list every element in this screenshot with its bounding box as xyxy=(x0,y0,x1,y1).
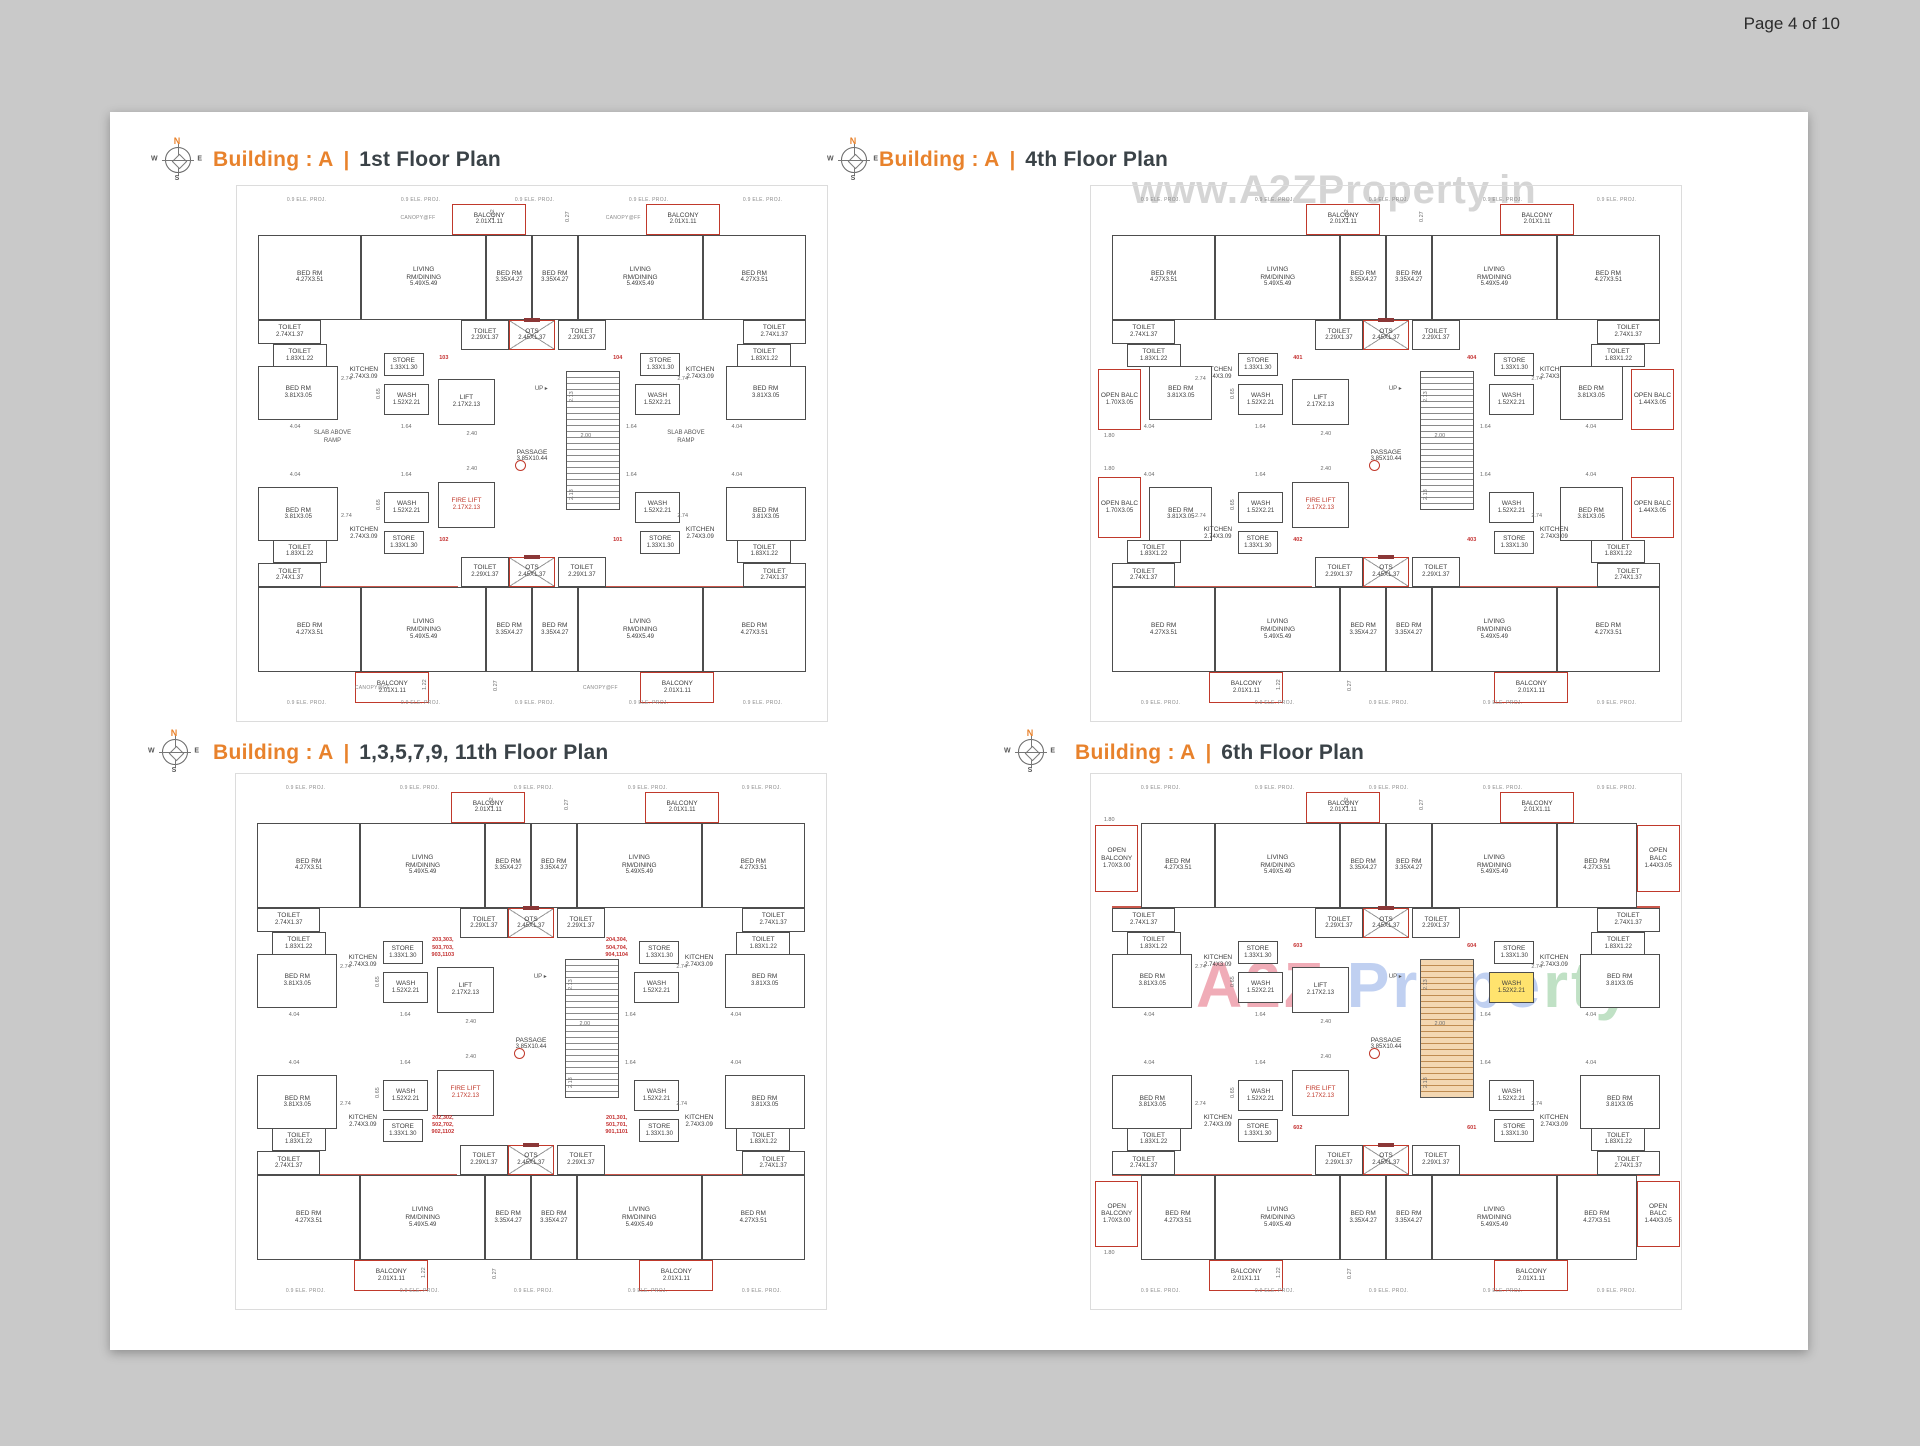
compass-south-label: S xyxy=(172,767,177,774)
dimension-label: 1.64 xyxy=(625,1012,636,1019)
room-dimension: 4.27X3.51 xyxy=(295,865,322,872)
room-wc_cb2: TOILET2.29X1.37 xyxy=(1412,1145,1460,1176)
room-label: BED RM xyxy=(1151,270,1176,278)
room-dimension: 2.74X3.09 xyxy=(1204,962,1231,969)
room-label: TOILET xyxy=(278,568,301,576)
compass-rose-2: N S E W xyxy=(836,142,870,176)
dimension-label: 0.27 xyxy=(492,1269,499,1280)
room-dimension: 5.49X5.49 xyxy=(1264,869,1291,876)
room-bed_ml: BED RM3.81X3.05 xyxy=(257,954,337,1008)
room-wash_tr: WASH1.52X2.21 xyxy=(635,384,681,415)
room-label: OTS xyxy=(525,564,538,572)
room-dimension: 2.74X1.37 xyxy=(1615,575,1642,582)
room-label: OTS xyxy=(1379,328,1392,336)
compass-south-label: S xyxy=(175,175,180,182)
plan-note-label: SLAB ABOVE RAMP xyxy=(646,430,726,445)
ele-proj-label: 0.9 ELE. PROJ. xyxy=(742,1288,782,1294)
room-dimension: 1.52X2.21 xyxy=(393,400,420,407)
room-dimension: 2.74X3.09 xyxy=(350,534,377,541)
ele-proj-label: 0.9 ELE. PROJ. xyxy=(1483,785,1523,791)
dimension-label: 4.04 xyxy=(1586,1060,1597,1067)
room-label: LIVING RM/DINING xyxy=(1260,854,1295,870)
room-dimension: 1.83X1.22 xyxy=(751,551,778,558)
unit-number: 102 xyxy=(421,537,467,544)
room-dimension: 3.35X4.27 xyxy=(541,277,568,284)
room-balc_b1: BALCONY2.01X1.11 xyxy=(354,1260,428,1291)
room-dimension: 3.81X3.05 xyxy=(284,981,311,988)
room-label: STORE xyxy=(1247,1123,1269,1131)
room-dimension: 1.52X2.21 xyxy=(392,988,419,995)
dimension-label: 2.40 xyxy=(466,431,477,438)
room-dimension: 2.01X1.11 xyxy=(1524,807,1551,814)
compass-west-label: W xyxy=(148,748,155,755)
room-dimension: 2.74X3.09 xyxy=(350,374,377,381)
dimension-label: 1.64 xyxy=(626,472,637,479)
room-label: LIVING RM/DINING xyxy=(1477,266,1512,282)
room-label: TOILET xyxy=(1617,324,1640,332)
room-wc_cb1: TOILET2.29X1.37 xyxy=(461,557,509,588)
ele-proj-label: 0.9 ELE. PROJ. xyxy=(287,197,327,203)
room-label: STORE xyxy=(648,1123,670,1131)
room-label: BED RM xyxy=(1151,622,1176,630)
dimension-label: 2.74 xyxy=(1195,513,1206,520)
room-label: TOILET xyxy=(763,568,786,576)
room-dimension: 2.17X2.13 xyxy=(452,1093,479,1100)
room-store_bl: STORE1.33X1.30 xyxy=(1238,1119,1278,1142)
room-bed_tr: BED RM4.27X3.51 xyxy=(702,823,805,908)
unit-number: 204,304, 504,704, 904,1104 xyxy=(594,937,640,958)
room-dimension: 2.45X1.37 xyxy=(1372,572,1399,579)
room-wc_cb2: TOILET2.29X1.37 xyxy=(1412,557,1460,588)
room-label: BED RM xyxy=(1584,1210,1609,1218)
room-label: LIFT xyxy=(459,982,472,990)
room-label: WASH xyxy=(1251,1088,1270,1096)
room-wc_bl1: TOILET2.74X1.37 xyxy=(258,563,321,588)
room-wc_ct1: TOILET2.29X1.37 xyxy=(461,320,509,351)
room-label: WASH xyxy=(1502,1088,1521,1096)
room-dimension: 4.27X3.51 xyxy=(1164,1218,1191,1225)
room-dimension: 4.27X3.51 xyxy=(1595,630,1622,637)
room-dimension: 1.52X2.21 xyxy=(643,1096,670,1103)
ele-proj-label: 0.9 ELE. PROJ. xyxy=(1483,197,1523,203)
room-label: BED RM xyxy=(286,507,311,515)
dimension-label: 2.13 xyxy=(1423,489,1430,500)
room-dimension: 2.45X1.37 xyxy=(1372,335,1399,342)
room-dimension: 3.81X3.05 xyxy=(1606,1102,1633,1109)
building-label: Building : A xyxy=(1075,741,1196,765)
dimension-label: 1.64 xyxy=(401,424,412,431)
room-label: TOILET xyxy=(763,324,786,332)
dimension-label: 0.27 xyxy=(493,681,500,692)
dimension-label: 2.74 xyxy=(676,964,687,971)
room-label: BALCONY xyxy=(1516,1268,1547,1276)
room-liv_tl: LIVING RM/DINING5.49X5.49 xyxy=(1215,235,1340,320)
room-dimension: 1.33X1.30 xyxy=(1244,1131,1271,1138)
dimension-label: 2.13 xyxy=(569,391,576,402)
compass-west-label: W xyxy=(827,156,834,163)
room-dimension: 1.83X1.22 xyxy=(1140,356,1167,363)
room-label: STORE xyxy=(1247,357,1269,365)
room-bed_ll: BED RM3.81X3.05 xyxy=(257,1075,337,1129)
room-dimension: 2.74X3.09 xyxy=(1204,1122,1231,1129)
room-dimension: 1.52X2.21 xyxy=(1247,508,1274,515)
room-ots_t: OTS2.45X1.37 xyxy=(1363,908,1409,939)
room-store_bl: STORE1.33X1.30 xyxy=(384,531,424,554)
room-ots_b: OTS2.45X1.37 xyxy=(508,1145,554,1176)
room-bed_mr: BED RM3.81X3.05 xyxy=(726,366,806,420)
room-dimension: 1.44X3.05 xyxy=(1644,1218,1671,1225)
room-dimension: 3.35X4.27 xyxy=(496,277,523,284)
room-lift: LIFT2.17X2.13 xyxy=(437,967,494,1013)
room-wash_tr: WASH1.52X2.21 xyxy=(634,972,680,1003)
room-dimension: 1.83X1.22 xyxy=(285,944,312,951)
room-kit_br: KITCHEN2.74X3.09 xyxy=(1526,1106,1583,1137)
room-dimension: 5.49X5.49 xyxy=(1481,281,1508,288)
room-bed_ml: BED RM3.81X3.05 xyxy=(1149,366,1212,420)
room-label: TOILET xyxy=(762,912,785,920)
ele-proj-label: 0.9 ELE. PROJ. xyxy=(1369,785,1409,791)
room-bed_br: BED RM4.27X3.51 xyxy=(1557,1175,1637,1260)
dimension-label: 1.22 xyxy=(1276,680,1283,691)
room-wc_tl2: TOILET1.83X1.22 xyxy=(272,932,326,955)
room-label: TOILET xyxy=(1328,1152,1351,1160)
room-dimension: 5.49X5.49 xyxy=(410,281,437,288)
room-label: PASSAGE xyxy=(517,449,548,457)
room-liv_br: LIVING RM/DINING5.49X5.49 xyxy=(1432,1175,1557,1260)
room-wc_ct2: TOILET2.29X1.37 xyxy=(1412,908,1460,939)
room-bed_tl: BED RM4.27X3.51 xyxy=(257,823,360,908)
room-dimension: 1.33X1.30 xyxy=(1501,1131,1528,1138)
room-label: STORE xyxy=(392,945,414,953)
room-bed_ml: BED RM3.81X3.05 xyxy=(1112,954,1192,1008)
room-dimension: 5.49X5.49 xyxy=(626,869,653,876)
unit-number: 603 xyxy=(1275,943,1321,950)
ele-proj-label: 0.9 ELE. PROJ. xyxy=(1597,785,1637,791)
room-balc_t2: BALCONY2.01X1.11 xyxy=(1500,792,1574,823)
room-dimension: 1.52X2.21 xyxy=(1247,400,1274,407)
dimension-label: 1.22 xyxy=(1344,209,1351,220)
room-label: BED RM xyxy=(542,622,567,630)
dimension-label: 1.64 xyxy=(401,472,412,479)
room-wc_tr2: TOILET1.83X1.22 xyxy=(736,932,790,955)
stairs-up-label: UP ▸ xyxy=(535,386,548,394)
room-lift: LIFT2.17X2.13 xyxy=(1292,967,1349,1013)
room-store_br: STORE1.33X1.30 xyxy=(640,531,680,554)
room-dimension: 3.81X3.05 xyxy=(752,514,779,521)
room-dimension: 1.52X2.21 xyxy=(644,400,671,407)
ele-proj-label: 0.9 ELE. PROJ. xyxy=(515,197,555,203)
room-dimension: 1.33X1.30 xyxy=(389,1131,416,1138)
plan-note-label: SLAB ABOVE RAMP xyxy=(293,430,373,445)
room-balc_b2: BALCONY2.01X1.11 xyxy=(639,1260,713,1291)
dimension-label: 2.74 xyxy=(1531,513,1542,520)
room-dimension: 2.74X1.37 xyxy=(275,920,302,927)
dimension-label: 2.74 xyxy=(1195,1101,1206,1108)
room-obal_rb: OPEN BALC1.44X3.05 xyxy=(1637,1181,1680,1248)
plan-note-label: CANOPY@FF xyxy=(572,685,629,691)
room-bed_tl: BED RM4.27X3.51 xyxy=(1141,823,1215,908)
dimension-label: 0.27 xyxy=(1347,1269,1354,1280)
dimension-label: 2.00 xyxy=(1434,433,1445,440)
room-label: WASH xyxy=(1251,980,1270,988)
dimension-label: 2.40 xyxy=(1320,466,1331,473)
unit-number: 103 xyxy=(421,355,467,362)
room-passage: PASSAGE3.85X10.44 xyxy=(498,438,566,474)
room-label: OPEN BALC xyxy=(1634,392,1671,400)
room-bed_bm1: BED RM3.35X4.27 xyxy=(1340,1175,1386,1260)
room-wc_ct1: TOILET2.29X1.37 xyxy=(460,908,508,939)
room-label: BALCONY xyxy=(667,800,698,808)
room-label: LIVING RM/DINING xyxy=(1260,618,1295,634)
dimension-label: 1.64 xyxy=(1480,472,1491,479)
room-dimension: 1.83X1.22 xyxy=(1140,944,1167,951)
compass-east-label: E xyxy=(197,156,202,163)
room-label: BED RM xyxy=(297,622,322,630)
room-dimension: 2.01X1.11 xyxy=(1330,219,1357,226)
room-dimension: 3.81X3.05 xyxy=(285,393,312,400)
room-wc_bl2: TOILET1.83X1.22 xyxy=(1127,540,1181,563)
compass-hub xyxy=(171,153,187,169)
room-wc_tl1: TOILET2.74X1.37 xyxy=(257,908,320,933)
ele-proj-label: 0.9 ELE. PROJ. xyxy=(1597,197,1637,203)
room-lift: LIFT2.17X2.13 xyxy=(1292,379,1349,425)
plan-note-label: 1.80 xyxy=(1104,433,1115,440)
room-dimension: 1.33X1.30 xyxy=(1244,543,1271,550)
ele-proj-label: 0.9 ELE. PROJ. xyxy=(1369,197,1409,203)
room-wc_tr1: TOILET2.74X1.37 xyxy=(1597,320,1660,345)
room-dimension: 2.74X1.37 xyxy=(276,332,303,339)
room-label: BED RM xyxy=(285,1095,310,1103)
room-dimension: 2.29X1.37 xyxy=(470,923,497,930)
room-dimension: 1.83X1.22 xyxy=(286,356,313,363)
room-obal_lt: OPEN BALCONY1.70X3.00 xyxy=(1095,825,1138,892)
room-label: TOILET xyxy=(1425,328,1448,336)
room-liv_bl: LIVING RM/DINING5.49X5.49 xyxy=(1215,587,1340,672)
room-kit_tr: KITCHEN2.74X3.09 xyxy=(1526,946,1583,977)
room-wc_tl2: TOILET1.83X1.22 xyxy=(1127,932,1181,955)
room-dimension: 1.33X1.30 xyxy=(1244,953,1271,960)
room-dimension: 2.01X1.11 xyxy=(670,219,697,226)
room-label: BED RM xyxy=(753,507,778,515)
page-number: Page 4 of 10 xyxy=(1640,14,1840,34)
room-label: KITCHEN xyxy=(349,954,378,962)
building-label: Building : A xyxy=(879,148,1000,172)
room-bed_tl: BED RM4.27X3.51 xyxy=(258,235,361,320)
room-label: STORE xyxy=(649,535,671,543)
room-dimension: 1.44X3.05 xyxy=(1644,863,1671,870)
room-dimension: 2.74X1.37 xyxy=(1615,1163,1642,1170)
room-label: FIRE LIFT xyxy=(451,497,481,505)
room-dimension: 2.74X1.37 xyxy=(760,1163,787,1170)
room-ots_t: OTS2.45X1.37 xyxy=(508,908,554,939)
room-label: TOILET xyxy=(277,912,300,920)
dimension-label: 2.13 xyxy=(1423,1077,1430,1088)
room-label: BED RM xyxy=(1579,385,1604,393)
brochure-sheet: www.A2ZProperty.in A2Z Property N S E W … xyxy=(110,112,1808,1350)
room-label: BED RM xyxy=(497,622,522,630)
room-label: STORE xyxy=(392,1123,414,1131)
dimension-label: 0.65 xyxy=(1230,1087,1237,1098)
room-label: OTS xyxy=(1379,916,1392,924)
room-wc_cb1: TOILET2.29X1.37 xyxy=(1315,557,1363,588)
room-label: BED RM xyxy=(497,270,522,278)
dimension-label: 1.64 xyxy=(625,1060,636,1067)
room-label: TOILET xyxy=(1617,1156,1640,1164)
title-separator: | xyxy=(1010,149,1016,172)
room-label: OTS xyxy=(524,916,537,924)
room-dimension: 1.52X2.21 xyxy=(1498,1096,1525,1103)
room-liv_tl: LIVING RM/DINING5.49X5.49 xyxy=(1215,823,1340,908)
room-dimension: 4.27X3.51 xyxy=(1595,277,1622,284)
room-dimension: 2.01X1.11 xyxy=(1233,688,1260,695)
room-label: KITCHEN xyxy=(686,366,715,374)
room-dimension: 1.83X1.22 xyxy=(1140,551,1167,558)
floor-plan-6th: BALCONY2.01X1.11BALCONY2.01X1.11BED RM4.… xyxy=(1101,784,1671,1299)
room-label: BED RM xyxy=(1351,1210,1376,1218)
room-label: STORE xyxy=(393,357,415,365)
room-label: OPEN BALC xyxy=(1101,500,1138,508)
room-label: BED RM xyxy=(1140,1095,1165,1103)
dimension-label: 2.40 xyxy=(466,466,477,473)
floor-plan-1st: BALCONY2.01X1.11BALCONY2.01X1.11BED RM4.… xyxy=(247,196,817,711)
ele-proj-label: 0.9 ELE. PROJ. xyxy=(286,785,326,791)
room-label: LIVING RM/DINING xyxy=(622,1206,657,1222)
room-label: KITCHEN xyxy=(349,1114,378,1122)
room-label: TOILET xyxy=(571,564,594,572)
room-dimension: 1.52X2.21 xyxy=(393,508,420,515)
compass-north-label: N xyxy=(174,136,181,146)
room-dimension: 1.52X2.21 xyxy=(1498,508,1525,515)
room-dimension: 4.27X3.51 xyxy=(295,1218,322,1225)
ele-proj-label: 0.9 ELE. PROJ. xyxy=(1597,1288,1637,1294)
compass-east-label: E xyxy=(194,748,199,755)
room-label: LIFT xyxy=(1314,982,1327,990)
room-label: BED RM xyxy=(1165,1210,1190,1218)
dimension-label: 2.40 xyxy=(1320,1054,1331,1061)
dimension-label: 4.04 xyxy=(289,1012,300,1019)
dimension-label: 2.74 xyxy=(1195,376,1206,383)
compass-ring xyxy=(841,147,867,173)
room-dimension: 2.29X1.37 xyxy=(567,923,594,930)
room-dimension: 1.33X1.30 xyxy=(1244,365,1271,372)
fire-lift-marker xyxy=(514,1048,525,1059)
dimension-label: 0.65 xyxy=(376,389,383,400)
room-dimension: 2.45X1.37 xyxy=(517,1160,544,1167)
room-dimension: 2.01X1.11 xyxy=(378,1276,405,1283)
room-dimension: 5.49X5.49 xyxy=(409,1222,436,1229)
room-dimension: 1.33X1.30 xyxy=(646,1131,673,1138)
room-dimension: 2.01X1.11 xyxy=(476,219,503,226)
dimension-label: 2.13 xyxy=(568,1077,575,1088)
room-dimension: 2.74X1.37 xyxy=(1130,920,1157,927)
ele-proj-label: 0.9 ELE. PROJ. xyxy=(1597,700,1637,706)
room-dimension: 2.01X1.11 xyxy=(1524,219,1551,226)
room-dimension: 2.01X1.11 xyxy=(475,807,502,814)
ele-proj-label: 0.9 ELE. PROJ. xyxy=(1255,197,1295,203)
room-label: FIRE LIFT xyxy=(1305,497,1335,505)
room-dimension: 3.81X3.05 xyxy=(284,1102,311,1109)
room-kit_tr: KITCHEN2.74X3.09 xyxy=(672,358,729,389)
room-dimension: 3.35X4.27 xyxy=(495,1218,522,1225)
room-ots_t: OTS2.45X1.37 xyxy=(1363,320,1409,351)
dimension-label: 2.74 xyxy=(1531,1101,1542,1108)
room-liv_tl: LIVING RM/DINING5.49X5.49 xyxy=(360,823,485,908)
room-bed_lr: BED RM3.81X3.05 xyxy=(726,487,806,541)
room-dimension: 5.49X5.49 xyxy=(410,634,437,641)
dimension-label: 1.64 xyxy=(1480,1012,1491,1019)
dimension-label: 4.04 xyxy=(1144,472,1155,479)
dimension-label: 4.04 xyxy=(731,1012,742,1019)
room-label: TOILET xyxy=(752,936,775,944)
room-label: WASH xyxy=(396,1088,415,1096)
room-label: WASH xyxy=(397,392,416,400)
room-label: LIFT xyxy=(460,394,473,402)
room-label: BALCONY xyxy=(1231,680,1262,688)
room-label: OPEN BALCONY xyxy=(1101,1203,1132,1219)
room-dimension: 3.81X3.05 xyxy=(1606,981,1633,988)
room-dimension: 3.81X3.05 xyxy=(1578,393,1605,400)
room-label: TOILET xyxy=(1142,1132,1165,1140)
room-bed_tm2: BED RM3.35X4.27 xyxy=(1386,823,1432,908)
room-balc_t2: BALCONY2.01X1.11 xyxy=(1500,204,1574,235)
room-dimension: 3.81X3.05 xyxy=(751,981,778,988)
dimension-label: 2.00 xyxy=(579,1021,590,1028)
compass-north-label: N xyxy=(171,728,178,738)
room-bed_mr: BED RM3.81X3.05 xyxy=(1580,954,1660,1008)
room-dimension: 1.33X1.30 xyxy=(389,953,416,960)
room-dimension: 2.29X1.37 xyxy=(471,335,498,342)
dimension-label: 4.04 xyxy=(732,472,743,479)
dimension-label: 1.64 xyxy=(1480,1060,1491,1067)
plan-note-label: CANOPY@FF xyxy=(344,685,401,691)
room-kit_br: KITCHEN2.74X3.09 xyxy=(1526,518,1583,549)
room-ots_b: OTS2.45X1.37 xyxy=(1363,557,1409,588)
room-dimension: 5.49X5.49 xyxy=(627,281,654,288)
ele-proj-label: 0.9 ELE. PROJ. xyxy=(514,785,554,791)
room-label: LIVING RM/DINING xyxy=(623,618,658,634)
ele-proj-label: 0.9 ELE. PROJ. xyxy=(286,1288,326,1294)
room-bed_bl: BED RM4.27X3.51 xyxy=(257,1175,360,1260)
room-dimension: 2.17X2.13 xyxy=(1307,1093,1334,1100)
room-bed_mr: BED RM3.81X3.05 xyxy=(725,954,805,1008)
unit-number: 404 xyxy=(1449,355,1495,362)
room-dimension: 5.49X5.49 xyxy=(627,634,654,641)
title-separator: | xyxy=(1206,742,1212,765)
stairs-up-label: UP ▸ xyxy=(1389,974,1402,982)
dimension-label: 1.22 xyxy=(421,1268,428,1279)
ele-proj-label: 0.9 ELE. PROJ. xyxy=(1141,1288,1181,1294)
dimension-label: 2.13 xyxy=(1423,979,1430,990)
room-label: WASH xyxy=(1502,392,1521,400)
room-liv_bl: LIVING RM/DINING5.49X5.49 xyxy=(361,587,486,672)
room-bed_ll: BED RM3.81X3.05 xyxy=(258,487,338,541)
room-label: TOILET xyxy=(473,1152,496,1160)
room-label: TOILET xyxy=(1617,912,1640,920)
dimension-label: 1.64 xyxy=(1255,1060,1266,1067)
room-label: WASH xyxy=(647,980,666,988)
room-firelift: FIRE LIFT2.17X2.13 xyxy=(1292,1070,1349,1116)
room-label: KITCHEN xyxy=(1204,1114,1233,1122)
room-wc_bl1: TOILET2.74X1.37 xyxy=(257,1151,320,1176)
room-label: TOILET xyxy=(1607,348,1630,356)
plan-note-label: CANOPY@FF xyxy=(595,215,652,221)
room-dimension: 2.45X1.37 xyxy=(518,335,545,342)
room-dimension: 4.27X3.51 xyxy=(1164,865,1191,872)
room-firelift: FIRE LIFT2.17X2.13 xyxy=(1292,482,1349,528)
room-label: KITCHEN xyxy=(685,1114,714,1122)
room-wc_br2: TOILET1.83X1.22 xyxy=(1591,1128,1645,1151)
floor-label: 1st Floor Plan xyxy=(359,148,501,172)
